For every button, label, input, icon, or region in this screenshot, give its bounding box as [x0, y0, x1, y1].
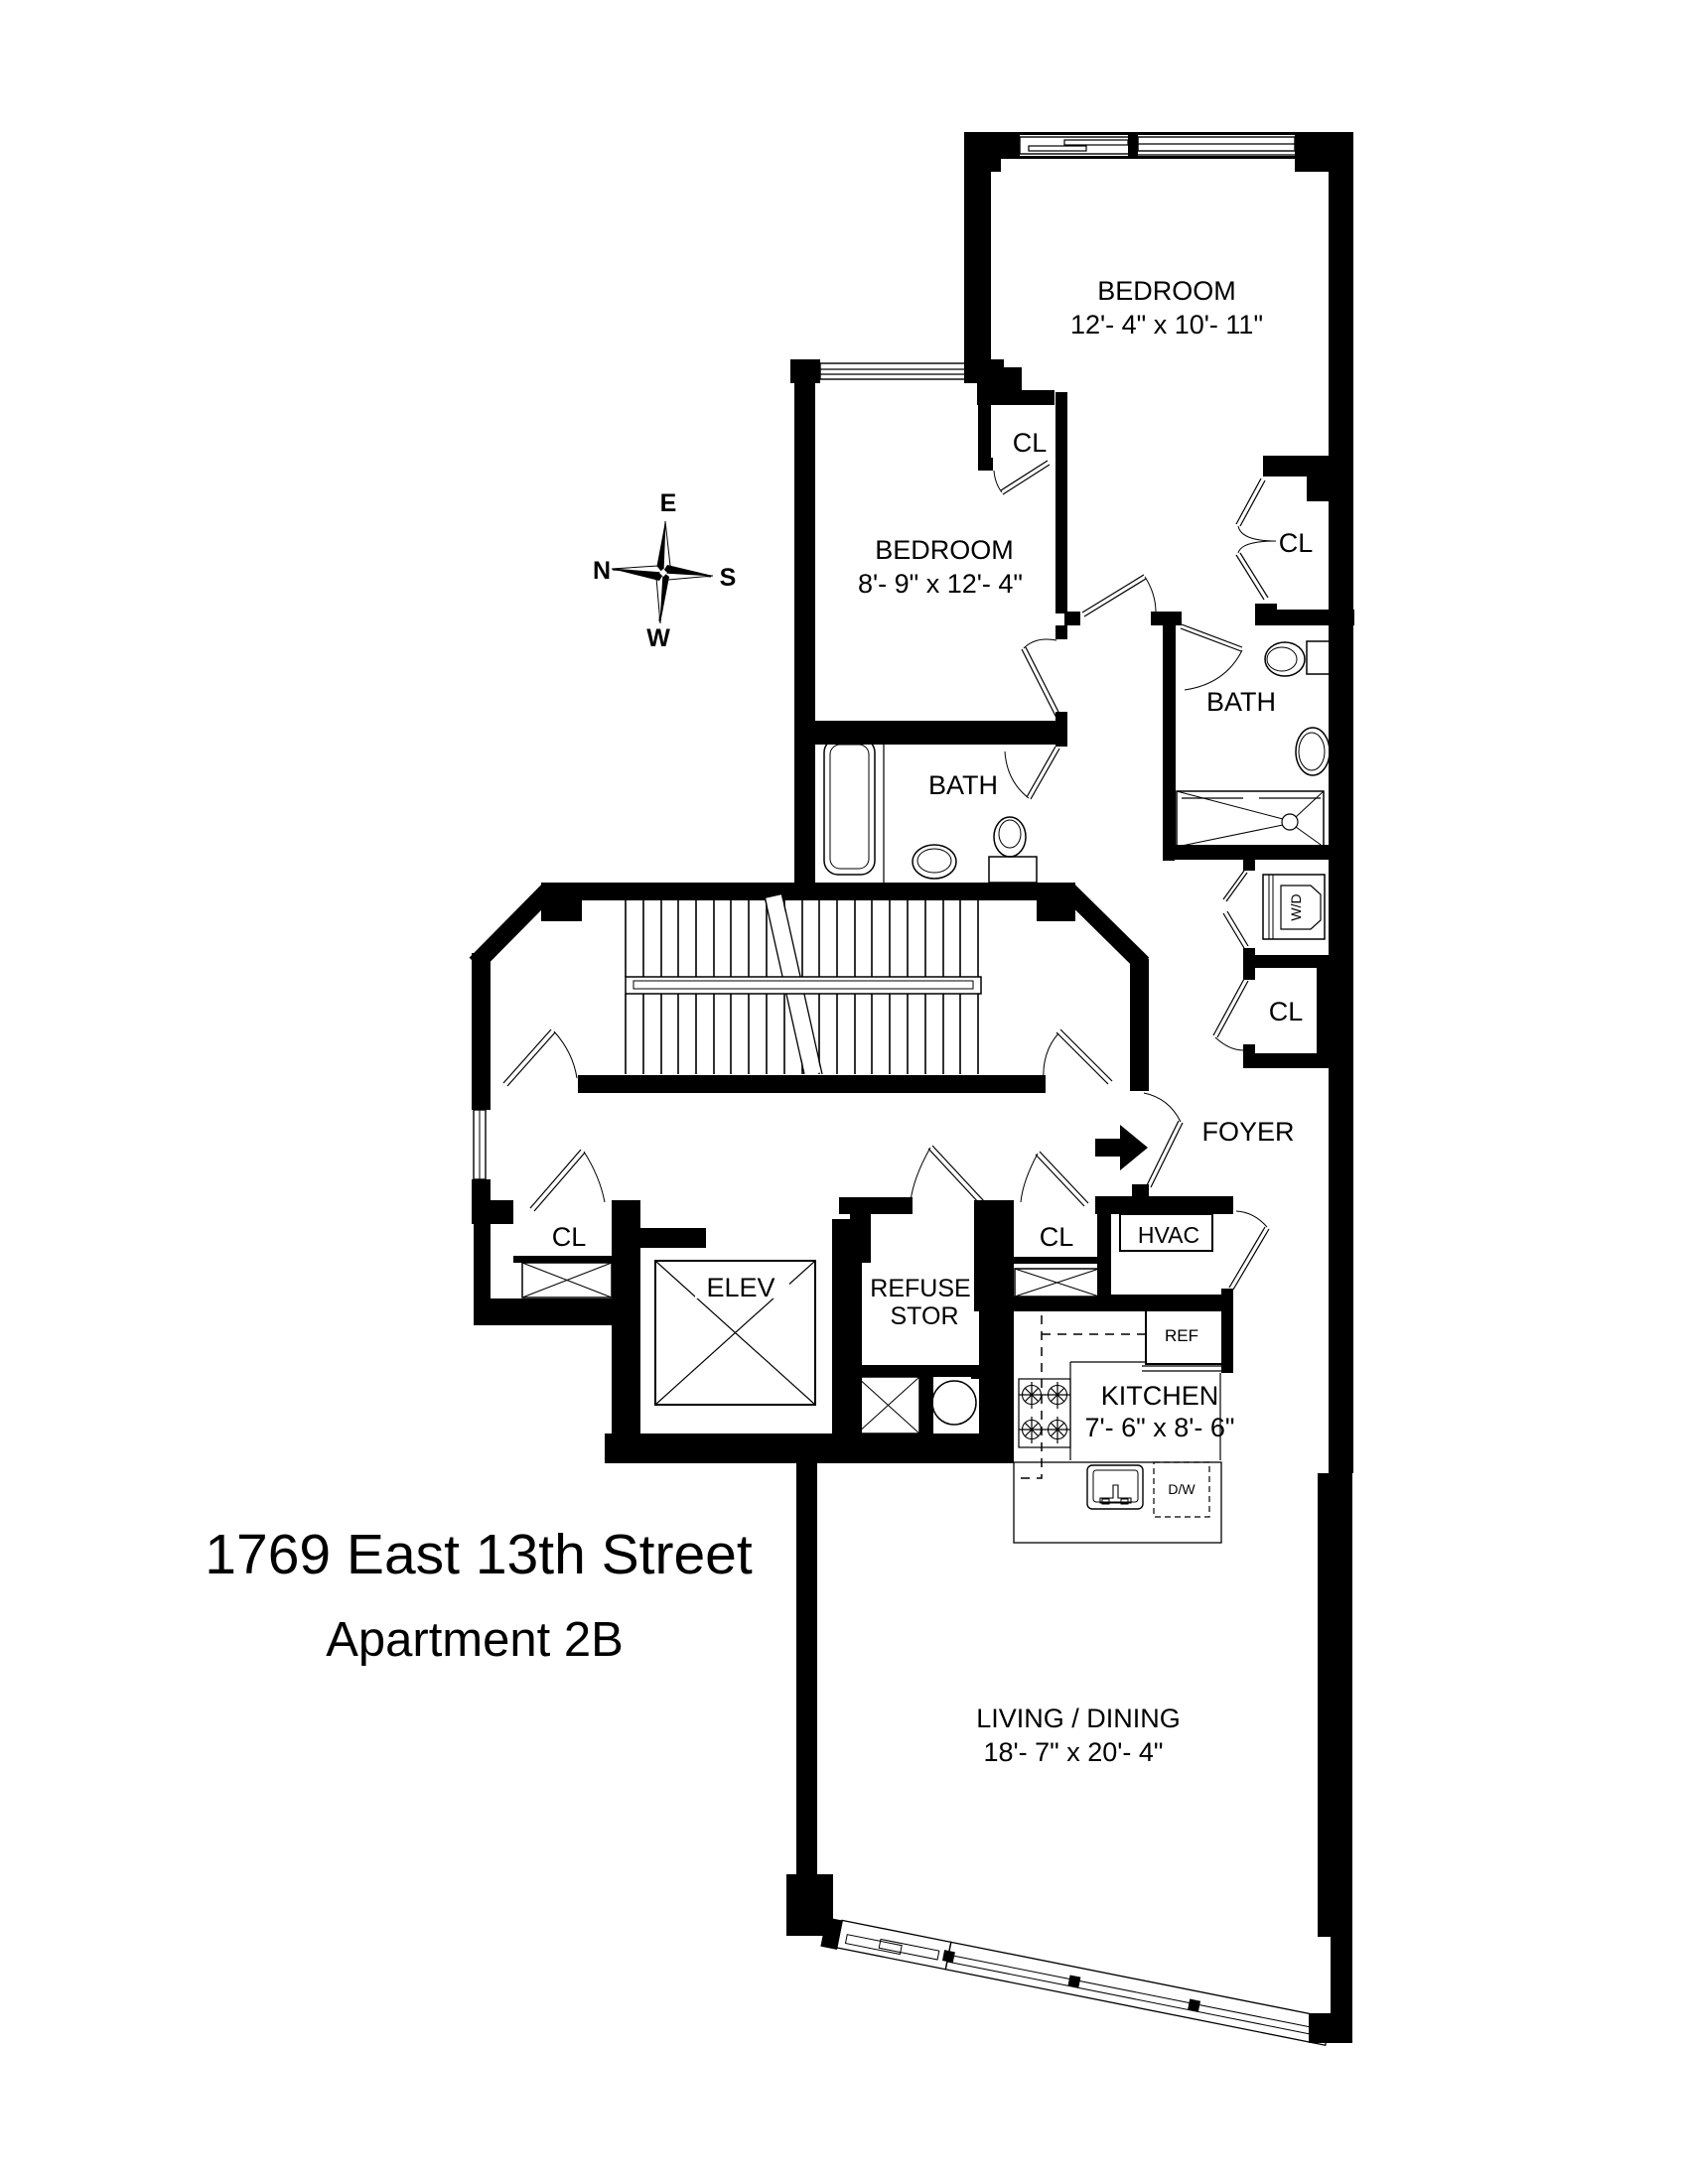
svg-text:18'- 7" x 20'- 4": 18'- 7" x 20'- 4" — [983, 1737, 1163, 1767]
svg-text:N: N — [593, 557, 611, 585]
svg-text:BATH: BATH — [928, 770, 998, 800]
svg-text:Apartment 2B: Apartment 2B — [326, 1613, 624, 1667]
svg-text:CL: CL — [1013, 428, 1048, 458]
svg-text:8'- 9" x 12'- 4": 8'- 9" x 12'- 4" — [858, 569, 1023, 599]
svg-text:ELEV: ELEV — [706, 1273, 774, 1302]
svg-text:STOR: STOR — [891, 1302, 959, 1330]
svg-text:E: E — [660, 489, 677, 517]
svg-text:1769 East 13th Street: 1769 East 13th Street — [205, 1523, 753, 1586]
svg-text:BATH: BATH — [1206, 687, 1276, 717]
svg-text:CL: CL — [552, 1222, 587, 1252]
svg-text:FOYER: FOYER — [1201, 1117, 1294, 1147]
svg-text:LIVING / DINING: LIVING / DINING — [976, 1704, 1181, 1733]
svg-text:7'- 6" x 8'- 6": 7'- 6" x 8'- 6" — [1084, 1413, 1234, 1442]
svg-text:KITCHEN: KITCHEN — [1101, 1381, 1219, 1411]
svg-text:BEDROOM: BEDROOM — [875, 535, 1014, 565]
svg-text:REFUSE: REFUSE — [870, 1275, 970, 1302]
svg-text:REF: REF — [1165, 1326, 1198, 1345]
svg-text:S: S — [720, 564, 737, 592]
svg-text:CL: CL — [1279, 528, 1314, 558]
svg-text:BEDROOM: BEDROOM — [1097, 276, 1236, 306]
svg-text:CL: CL — [1040, 1222, 1074, 1252]
svg-text:HVAC: HVAC — [1138, 1222, 1199, 1248]
svg-text:W/D: W/D — [1288, 893, 1304, 920]
svg-text:CL: CL — [1269, 997, 1304, 1026]
svg-text:D/W: D/W — [1168, 1481, 1196, 1497]
svg-text:W: W — [646, 624, 670, 652]
svg-text:12'- 4" x 10'- 11": 12'- 4" x 10'- 11" — [1070, 310, 1263, 340]
